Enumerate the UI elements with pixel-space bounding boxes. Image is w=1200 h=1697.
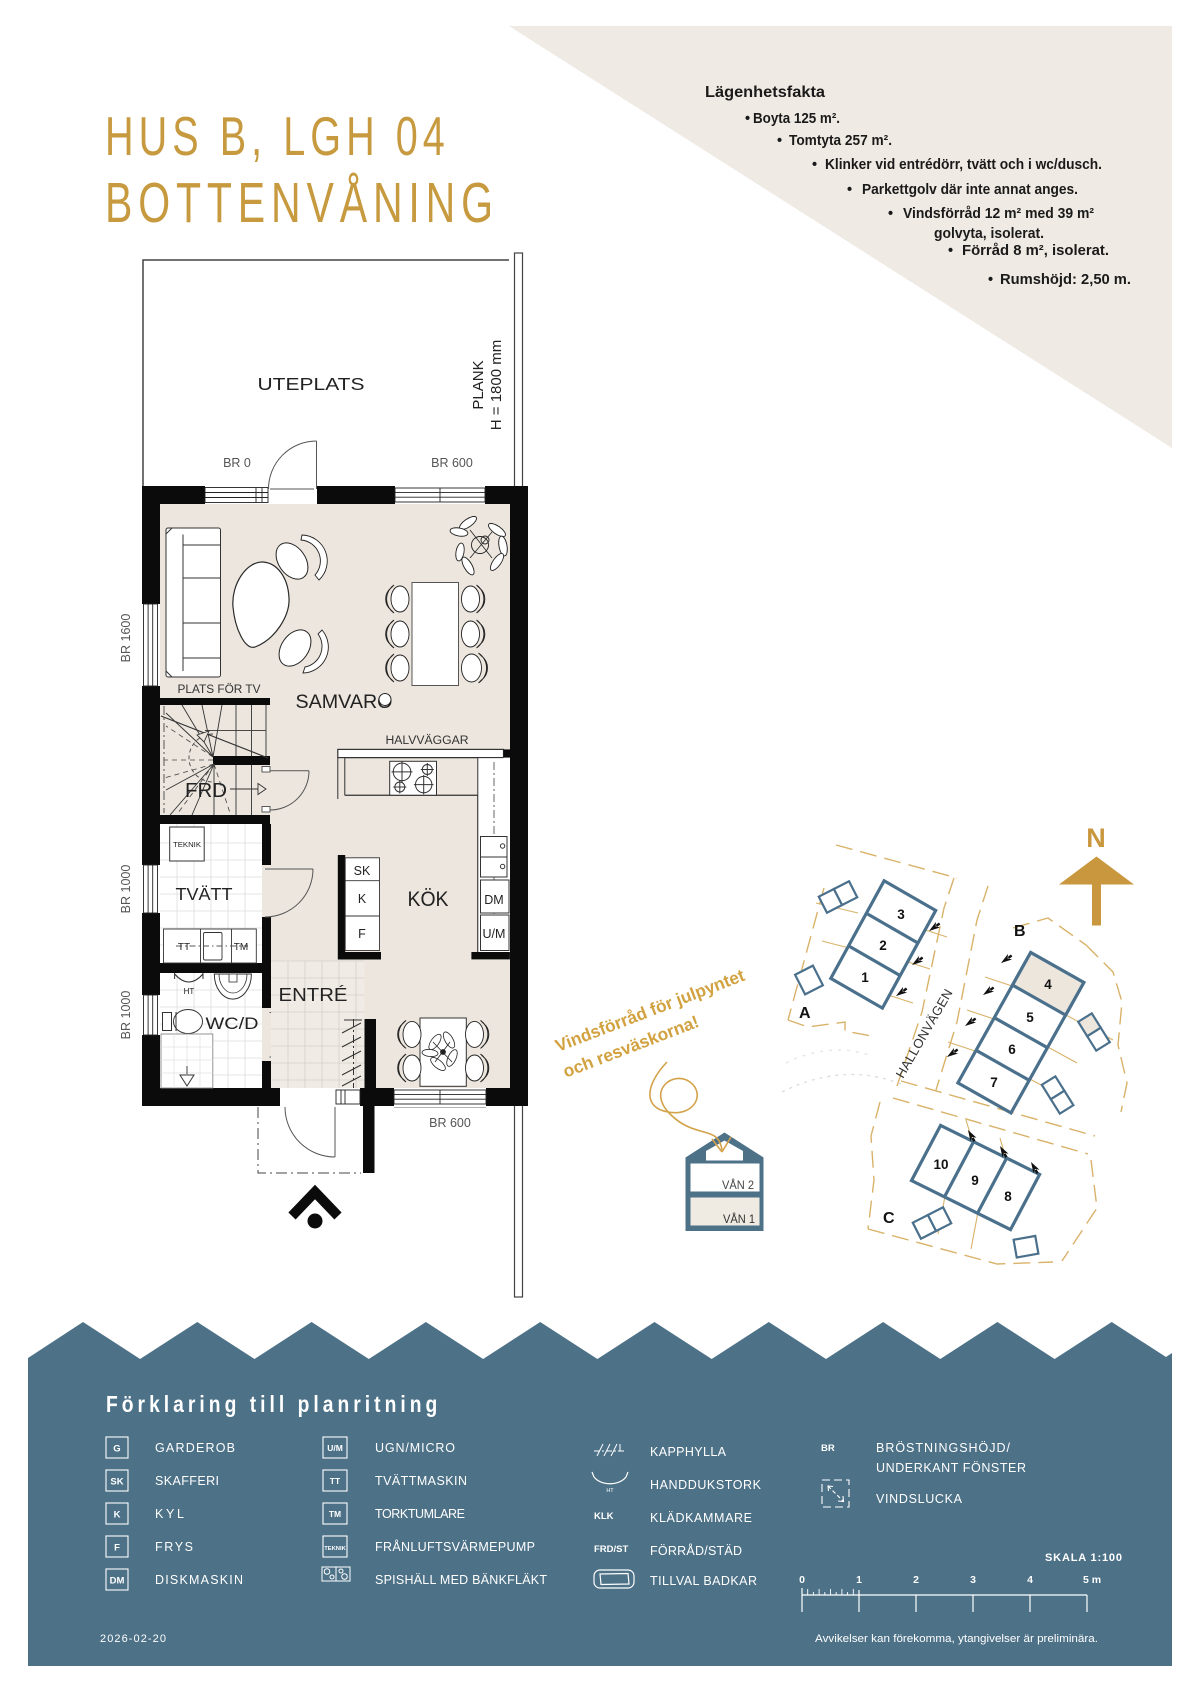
svg-text:TILLVAL BADKAR: TILLVAL BADKAR	[650, 1574, 757, 1588]
svg-text:VINDSLUCKA: VINDSLUCKA	[876, 1492, 963, 1506]
svg-text:TEKNIK: TEKNIK	[173, 840, 201, 849]
svg-text:TM: TM	[234, 942, 248, 953]
svg-text:6: 6	[1008, 1042, 1016, 1057]
svg-text:•: •	[745, 111, 750, 127]
svg-text:Förklaring till planritning: Förklaring till planritning	[106, 1391, 437, 1417]
svg-text:HT: HT	[184, 987, 195, 996]
svg-text:PLATS FÖR TV: PLATS FÖR TV	[178, 684, 261, 696]
svg-text:N: N	[1086, 823, 1106, 853]
svg-text:TVÄTTMASKIN: TVÄTTMASKIN	[375, 1474, 467, 1488]
svg-text:U/M: U/M	[483, 927, 506, 941]
svg-text:UNDERKANT FÖNSTER: UNDERKANT FÖNSTER	[876, 1461, 1026, 1475]
svg-text:9: 9	[971, 1173, 979, 1188]
svg-text:KYL: KYL	[155, 1507, 184, 1521]
svg-text:2: 2	[913, 1574, 919, 1586]
svg-text:TT: TT	[330, 1476, 341, 1486]
svg-text:HT: HT	[606, 1488, 614, 1494]
svg-text:BR 1000: BR 1000	[119, 865, 133, 914]
svg-text:SKAFFERI: SKAFFERI	[155, 1474, 219, 1488]
svg-text:VÅN 1: VÅN 1	[723, 1213, 755, 1226]
svg-text:Boyta 125 m².: Boyta 125 m².	[753, 111, 840, 127]
svg-text:KLK: KLK	[594, 1511, 614, 1522]
svg-text:UTEPLATS: UTEPLATS	[258, 374, 365, 394]
svg-text:•: •	[948, 243, 953, 259]
svg-text:8: 8	[1004, 1189, 1012, 1204]
svg-text:G: G	[113, 1444, 120, 1455]
svg-text:2026-02-20: 2026-02-20	[100, 1633, 166, 1645]
svg-text:BR 1600: BR 1600	[119, 614, 133, 663]
svg-text:BR: BR	[821, 1443, 835, 1454]
svg-text:U/M: U/M	[327, 1443, 343, 1453]
svg-text:ENTRÉ: ENTRÉ	[279, 984, 348, 1005]
svg-text:K: K	[114, 1510, 121, 1521]
svg-text:Rumshöjd: 2,50 m.: Rumshöjd: 2,50 m.	[1000, 272, 1131, 288]
svg-text:FRD: FRD	[185, 779, 227, 802]
svg-text:0: 0	[799, 1574, 805, 1586]
svg-text:F: F	[358, 927, 366, 941]
svg-text:10: 10	[933, 1157, 948, 1172]
svg-text:3: 3	[970, 1574, 976, 1586]
svg-text:UGN/MICRO: UGN/MICRO	[375, 1441, 455, 1455]
svg-text:SAMVARO: SAMVARO	[296, 691, 393, 713]
svg-text:BR 600: BR 600	[431, 456, 473, 470]
svg-text:FRYS: FRYS	[155, 1540, 193, 1554]
svg-text:SK: SK	[110, 1477, 123, 1488]
svg-text:GARDEROB: GARDEROB	[155, 1441, 235, 1455]
svg-text:Förråd 8 m², isolerat.: Förråd 8 m², isolerat.	[962, 243, 1109, 259]
svg-text:•: •	[812, 157, 817, 173]
svg-text:HALVVÄGGAR: HALVVÄGGAR	[386, 735, 469, 747]
svg-text:•: •	[988, 272, 993, 288]
svg-text:golvyta, isolerat.: golvyta, isolerat.	[934, 226, 1044, 242]
svg-text:BR 1000: BR 1000	[119, 991, 133, 1040]
svg-text:KÖK: KÖK	[408, 888, 449, 911]
svg-text:DM: DM	[110, 1576, 125, 1587]
svg-text:SPISHÄLL MED BÄNKFLÄKT: SPISHÄLL MED BÄNKFLÄKT	[375, 1573, 547, 1587]
svg-text:5 m: 5 m	[1083, 1574, 1101, 1586]
svg-text:H = 1800 mm: H = 1800 mm	[488, 340, 505, 430]
svg-text:TT: TT	[178, 942, 190, 953]
svg-text:TVÄTT: TVÄTT	[176, 884, 233, 904]
svg-text:•: •	[888, 206, 893, 222]
svg-text:FRÅNLUFTSVÄRMEPUMP: FRÅNLUFTSVÄRMEPUMP	[375, 1539, 535, 1554]
svg-text:B: B	[1014, 923, 1026, 940]
svg-text:Parkettgolv där inte annat ang: Parkettgolv där inte annat anges.	[862, 182, 1078, 198]
svg-text:C: C	[883, 1210, 895, 1227]
svg-text:1: 1	[861, 970, 869, 985]
svg-text:4: 4	[1044, 977, 1052, 992]
svg-text:Vindsförråd 12 m² med 39 m²: Vindsförråd 12 m² med 39 m²	[903, 206, 1094, 222]
svg-text:4: 4	[1027, 1574, 1033, 1586]
svg-text:SK: SK	[354, 864, 371, 878]
svg-text:TEKNIK: TEKNIK	[324, 1546, 346, 1552]
svg-text:F: F	[114, 1543, 120, 1554]
svg-text:A: A	[799, 1005, 811, 1022]
svg-text:BR 600: BR 600	[429, 1116, 471, 1130]
svg-text:VÅN 2: VÅN 2	[722, 1179, 754, 1192]
svg-text:TM: TM	[329, 1509, 341, 1519]
svg-text:Klinker vid entrédörr, tvätt o: Klinker vid entrédörr, tvätt och i wc/du…	[825, 157, 1102, 173]
svg-text:SKALA 1:100: SKALA 1:100	[1045, 1552, 1122, 1564]
svg-text:7: 7	[990, 1075, 998, 1090]
svg-text:HANDDUKSTORK: HANDDUKSTORK	[650, 1478, 762, 1492]
svg-text:5: 5	[1026, 1010, 1034, 1025]
svg-text:Lägenhetsfakta: Lägenhetsfakta	[705, 84, 825, 101]
svg-text:BOTTENVÅNING: BOTTENVÅNING	[105, 170, 493, 234]
svg-text:Avvikelser kan förekomma, ytan: Avvikelser kan förekomma, ytangivelser ä…	[815, 1633, 1098, 1645]
svg-text:DISKMASKIN: DISKMASKIN	[155, 1573, 243, 1587]
svg-text:3: 3	[897, 907, 905, 922]
svg-text:•: •	[777, 133, 782, 149]
svg-text:BRÖSTNINGSHÖJD/: BRÖSTNINGSHÖJD/	[876, 1441, 1011, 1455]
svg-text:HUS B, LGH 04: HUS B, LGH 04	[105, 107, 445, 168]
svg-text:2: 2	[879, 938, 887, 953]
svg-text:TORKTUMLARE: TORKTUMLARE	[375, 1507, 465, 1521]
svg-text:PLANK: PLANK	[470, 360, 487, 409]
svg-text:K: K	[358, 892, 367, 906]
svg-text:Tomtyta 257 m².: Tomtyta 257 m².	[789, 133, 892, 149]
svg-text:1: 1	[856, 1574, 862, 1586]
svg-text:KAPPHYLLA: KAPPHYLLA	[650, 1445, 727, 1459]
svg-text:FRD/ST: FRD/ST	[594, 1544, 629, 1555]
svg-text:KLÄDKAMMARE: KLÄDKAMMARE	[650, 1511, 752, 1525]
svg-text:FÖRRÅD/STÄD: FÖRRÅD/STÄD	[650, 1543, 742, 1558]
svg-text:•: •	[847, 182, 852, 198]
svg-text:BR 0: BR 0	[223, 456, 251, 470]
svg-text:DM: DM	[484, 893, 503, 907]
svg-text:WC/D: WC/D	[206, 1014, 259, 1033]
